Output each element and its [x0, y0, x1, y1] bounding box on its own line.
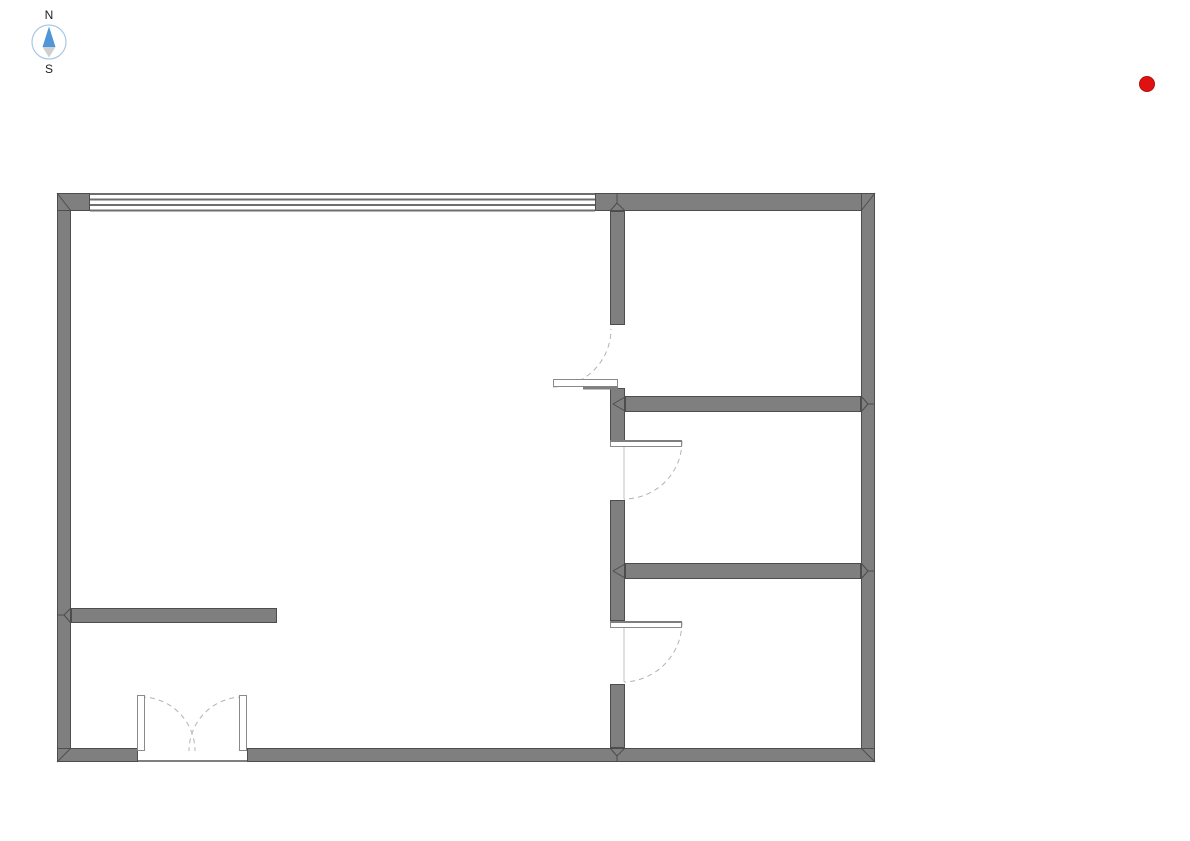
door-3-swing-arc	[624, 622, 682, 682]
door-1-swing-arc	[553, 329, 611, 387]
wall-interior-vert-4	[611, 685, 625, 748]
wall-right	[862, 194, 875, 762]
wall-top-left-pier	[58, 194, 90, 211]
wall-interior-horiz-1	[626, 397, 861, 412]
door-2-swing-arc	[624, 441, 682, 499]
wall-interior-vert-1	[611, 212, 625, 325]
wall-interior-vert-3	[611, 501, 625, 621]
wall-bottom-left	[58, 749, 138, 762]
floorplan-canvas: N S	[0, 0, 1190, 841]
door-1-leaf	[554, 380, 618, 387]
red-marker-dot-icon	[1140, 77, 1155, 92]
wall-interior-vert-2	[611, 389, 625, 441]
wall-bottom-right	[248, 749, 875, 762]
floorplan-drawing	[0, 0, 1190, 841]
wall-interior-stub	[72, 609, 277, 623]
wall-interior-horiz-2	[626, 564, 861, 579]
red-marker	[1138, 75, 1156, 93]
double-door-right-leaf-swing-arc	[189, 697, 243, 751]
wall-top-right	[596, 194, 875, 211]
double-door-right-leaf-leaf	[240, 696, 247, 751]
double-door-left-leaf-leaf	[138, 696, 145, 751]
wall-left	[58, 194, 71, 762]
double-door-left-leaf-swing-arc	[141, 697, 195, 751]
